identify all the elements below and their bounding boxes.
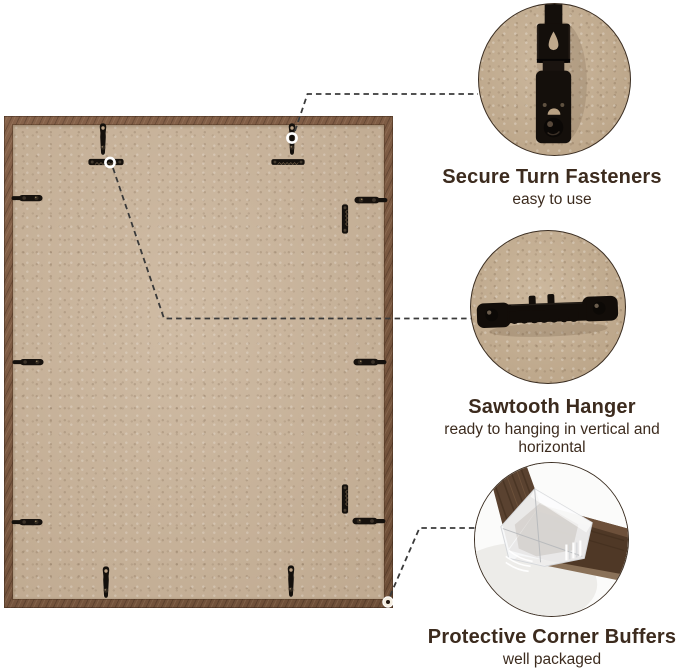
callout-title: Secure Turn Fasteners <box>414 167 679 188</box>
corner-buffer-closeup <box>474 462 629 617</box>
sawtooth-hanger-icon <box>341 204 349 234</box>
callout-title: Sawtooth Hanger <box>414 397 679 418</box>
frame-back-photo <box>4 116 393 608</box>
callout-subtitle: easy to use <box>433 191 671 209</box>
frame-backing-board <box>13 125 384 599</box>
turn-fastener-icon <box>286 565 296 597</box>
callout-protective-corner-buffers: Protective Corner Buffers well packaged <box>414 627 679 668</box>
sawtooth-hanger-icon <box>341 484 349 514</box>
callout-secure-turn-fasteners: Secure Turn Fasteners easy to use <box>414 167 679 209</box>
callout-subtitle: ready to hanging in vertical and horizon… <box>433 421 671 457</box>
callout-sawtooth-hanger: Sawtooth Hanger ready to hanging in vert… <box>414 397 679 457</box>
sawtooth-hanger-icon <box>271 158 305 166</box>
turn-fastener-icon <box>11 193 43 203</box>
sawtooth-hanger-closeup <box>470 230 626 384</box>
turn-fastener-icon <box>352 516 386 526</box>
callout-title: Protective Corner Buffers <box>414 627 679 648</box>
sawtooth-hanger-closeup-art <box>471 231 625 383</box>
turn-fastener-icon <box>287 123 297 155</box>
turn-fastener-closeup-art <box>479 4 630 155</box>
turn-fastener-icon <box>98 123 108 155</box>
leader-line-corner <box>390 528 475 596</box>
turn-fastener-icon <box>12 357 44 367</box>
callout-subtitle: well packaged <box>433 651 671 668</box>
turn-fastener-icon <box>353 357 387 367</box>
product-infographic: Secure Turn Fasteners easy to use Sawtoo… <box>0 0 679 668</box>
turn-fastener-icon <box>11 517 43 527</box>
turn-fastener-icon <box>354 195 388 205</box>
corner-buffer-closeup-art <box>475 463 628 616</box>
turn-fastener-closeup <box>478 3 631 156</box>
turn-fastener-icon <box>101 566 111 598</box>
sawtooth-hanger-icon <box>88 158 124 166</box>
